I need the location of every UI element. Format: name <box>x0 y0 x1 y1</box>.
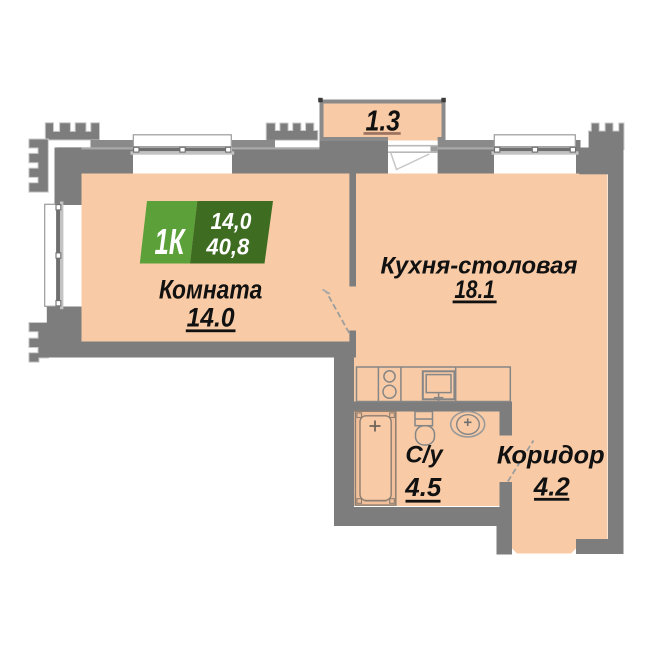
svg-text:Коридор: Коридор <box>497 442 605 470</box>
svg-text:18.1: 18.1 <box>454 276 495 304</box>
svg-text:14,0: 14,0 <box>211 208 252 234</box>
svg-text:4.5: 4.5 <box>404 472 442 502</box>
svg-text:С/у: С/у <box>405 442 444 469</box>
svg-text:Комната: Комната <box>159 275 263 305</box>
svg-text:14.0: 14.0 <box>187 303 235 333</box>
svg-text:1К: 1К <box>155 221 187 262</box>
svg-text:4.2: 4.2 <box>533 472 571 502</box>
svg-text:40,8: 40,8 <box>205 234 250 260</box>
